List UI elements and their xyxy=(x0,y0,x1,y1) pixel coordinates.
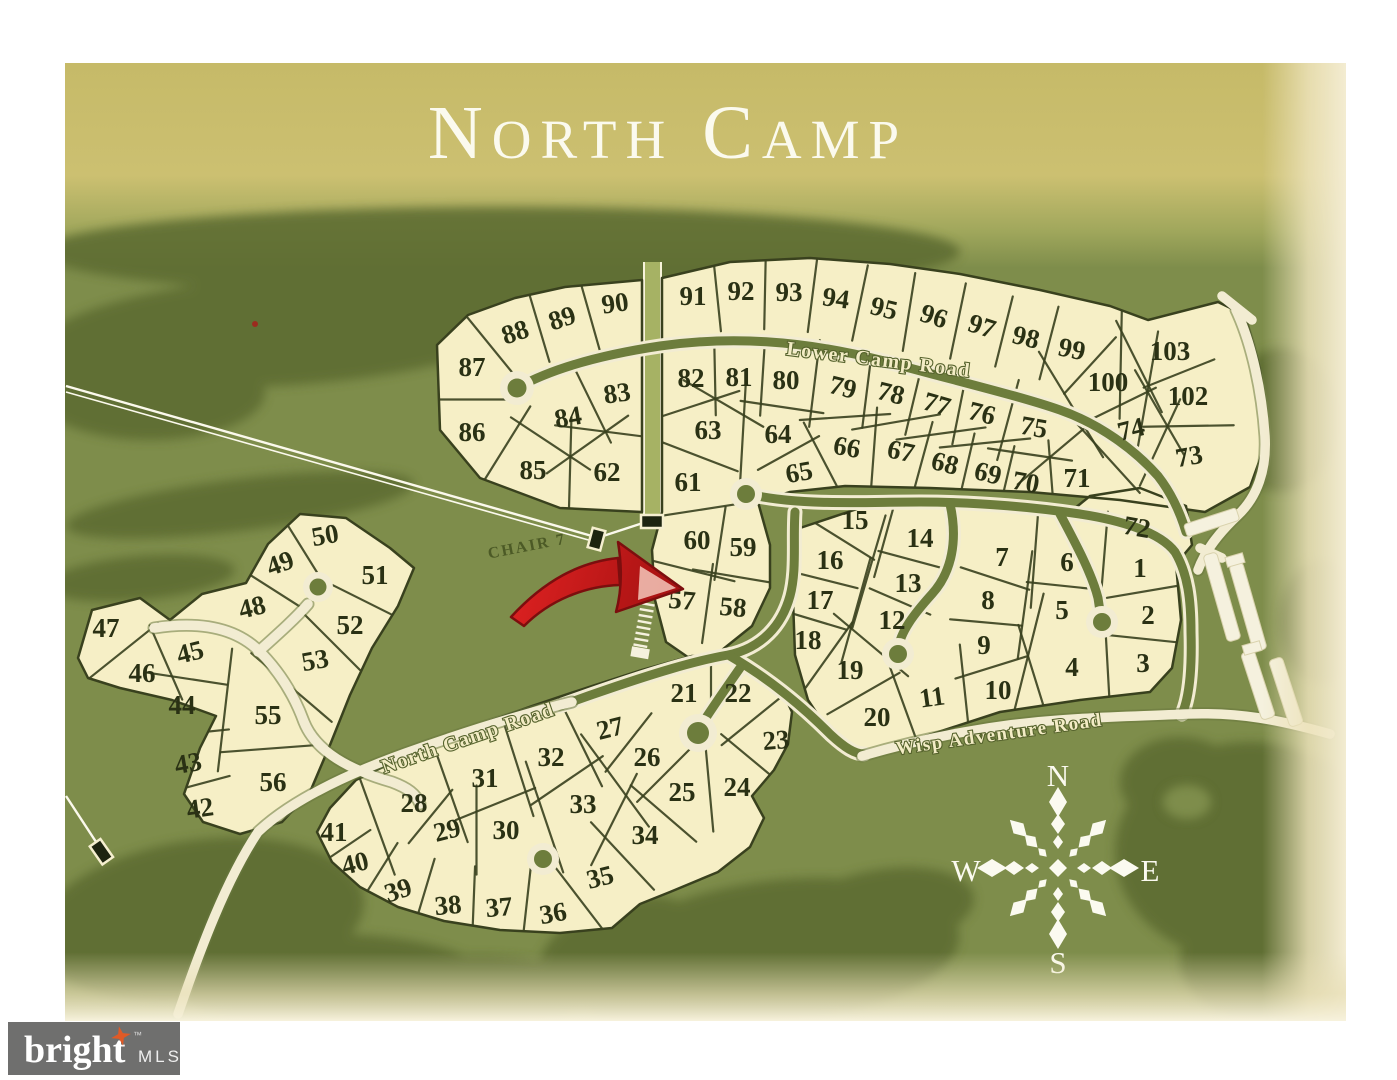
lot-number-90: 90 xyxy=(600,286,631,319)
lot-number-55: 55 xyxy=(255,700,282,730)
lot-number-11: 11 xyxy=(917,680,946,713)
logo-suffix-text: MLS xyxy=(138,1047,182,1066)
lot-number-5: 5 xyxy=(1055,595,1069,625)
lot-number-86: 86 xyxy=(459,417,486,447)
lot-number-22: 22 xyxy=(725,678,752,708)
lot-number-100: 100 xyxy=(1088,367,1129,397)
culdesac-bulb xyxy=(730,478,762,510)
lot-number-65: 65 xyxy=(783,455,815,489)
lot-number-56: 56 xyxy=(260,767,287,797)
lot-number-61: 61 xyxy=(675,467,702,497)
lot-number-32: 32 xyxy=(538,742,565,772)
right-edge-fade xyxy=(1262,63,1346,1021)
lot-number-34: 34 xyxy=(632,820,659,850)
logo-trademark: ™ xyxy=(133,1030,142,1040)
small-red-speck xyxy=(252,321,258,327)
lot-number-14: 14 xyxy=(907,523,934,553)
lot-number-37: 37 xyxy=(484,891,514,923)
lot-number-25: 25 xyxy=(669,777,696,807)
lot-number-52: 52 xyxy=(337,610,364,640)
lot-number-73: 73 xyxy=(1173,439,1205,473)
lot-number-18: 18 xyxy=(795,625,822,655)
lot-number-81: 81 xyxy=(726,362,753,392)
lot-number-30: 30 xyxy=(493,815,520,845)
lot-number-59: 59 xyxy=(730,532,757,562)
lot-number-83: 83 xyxy=(602,376,633,409)
lot-number-92: 92 xyxy=(728,276,755,306)
lot-number-63: 63 xyxy=(695,415,722,445)
bright-mls-logo: bright ™ MLS xyxy=(8,1022,182,1075)
lot-number-42: 42 xyxy=(185,791,216,824)
lot-number-102: 102 xyxy=(1168,381,1209,411)
lot-number-31: 31 xyxy=(472,763,499,793)
lot-number-91: 91 xyxy=(680,281,707,311)
lot-number-24: 24 xyxy=(724,772,751,802)
lot-number-20: 20 xyxy=(864,702,891,732)
lot-number-82: 82 xyxy=(678,363,705,393)
lot-number-103: 103 xyxy=(1150,336,1191,366)
lot-number-71: 71 xyxy=(1064,463,1091,493)
lot-number-72: 72 xyxy=(1121,510,1153,544)
logo-brand-text: bright xyxy=(24,1029,126,1071)
lot-number-12: 12 xyxy=(879,605,906,635)
lot-number-33: 33 xyxy=(570,789,597,819)
lot-number-51: 51 xyxy=(362,560,389,590)
culdesac-bulb xyxy=(679,714,717,752)
lot-number-64: 64 xyxy=(765,419,792,449)
lot-number-38: 38 xyxy=(433,889,463,921)
lot-number-58: 58 xyxy=(718,591,748,623)
lot-number-16: 16 xyxy=(817,545,844,575)
lot-number-3: 3 xyxy=(1136,648,1150,678)
lot-number-84: 84 xyxy=(552,400,584,434)
lot-number-70: 70 xyxy=(1010,465,1042,499)
lot-number-87: 87 xyxy=(459,352,486,382)
lot-number-17: 17 xyxy=(807,585,834,615)
lot-number-75: 75 xyxy=(1018,410,1050,444)
lot-number-85: 85 xyxy=(520,455,547,485)
lot-number-60: 60 xyxy=(684,525,711,555)
lot-number-44: 44 xyxy=(169,690,196,720)
lot-number-28: 28 xyxy=(401,788,428,818)
lot-number-8: 8 xyxy=(981,585,995,615)
ski-slope-corridor xyxy=(643,262,662,518)
compass-east-label: E xyxy=(1141,853,1160,888)
lot-number-94: 94 xyxy=(821,281,852,314)
lot-number-41: 41 xyxy=(321,817,348,847)
lot-number-19: 19 xyxy=(837,655,864,685)
culdesac-bulb xyxy=(882,638,914,670)
compass-north-label: N xyxy=(1047,758,1069,793)
lot-number-2: 2 xyxy=(1141,600,1155,630)
lot-number-50: 50 xyxy=(309,518,341,552)
lot-number-66: 66 xyxy=(831,430,863,464)
culdesac-bulb xyxy=(1086,606,1118,638)
lot-number-26: 26 xyxy=(634,742,661,772)
lot-number-21: 21 xyxy=(671,678,698,708)
lot-number-62: 62 xyxy=(594,457,621,487)
lot-number-53: 53 xyxy=(299,643,331,677)
lot-divider-102-73 xyxy=(1143,425,1233,427)
lot-number-47: 47 xyxy=(93,613,120,643)
north-camp-plat-map: Lower Camp Road North Camp Road Wisp Adv… xyxy=(0,0,1397,1080)
lot-number-46: 46 xyxy=(129,658,156,688)
bottom-edge-fade xyxy=(65,952,1346,1021)
lot-number-43: 43 xyxy=(172,746,204,780)
lot-number-93: 93 xyxy=(776,277,803,307)
lot-number-23: 23 xyxy=(761,724,791,756)
lot-number-1: 1 xyxy=(1133,553,1147,583)
lot-number-4: 4 xyxy=(1065,652,1079,682)
culdesac-bulb xyxy=(303,572,333,602)
lot-number-6: 6 xyxy=(1060,547,1074,577)
forest-clearing xyxy=(1163,785,1211,819)
lot-number-7: 7 xyxy=(995,542,1009,572)
lot-number-36: 36 xyxy=(537,896,569,930)
compass-west-label: W xyxy=(951,853,981,888)
map-canvas: Lower Camp Road North Camp Road Wisp Adv… xyxy=(25,63,1397,1042)
lot-number-13: 13 xyxy=(895,568,922,598)
culdesac-bulb xyxy=(500,371,534,405)
plat-map-page: Lower Camp Road North Camp Road Wisp Adv… xyxy=(0,0,1397,1080)
lift-terminal-top xyxy=(641,515,663,528)
lot-number-15: 15 xyxy=(842,505,869,535)
lot-number-9: 9 xyxy=(977,630,991,660)
lot-number-10: 10 xyxy=(985,675,1012,705)
culdesac-bulb xyxy=(527,843,559,875)
lot-number-80: 80 xyxy=(773,365,800,395)
